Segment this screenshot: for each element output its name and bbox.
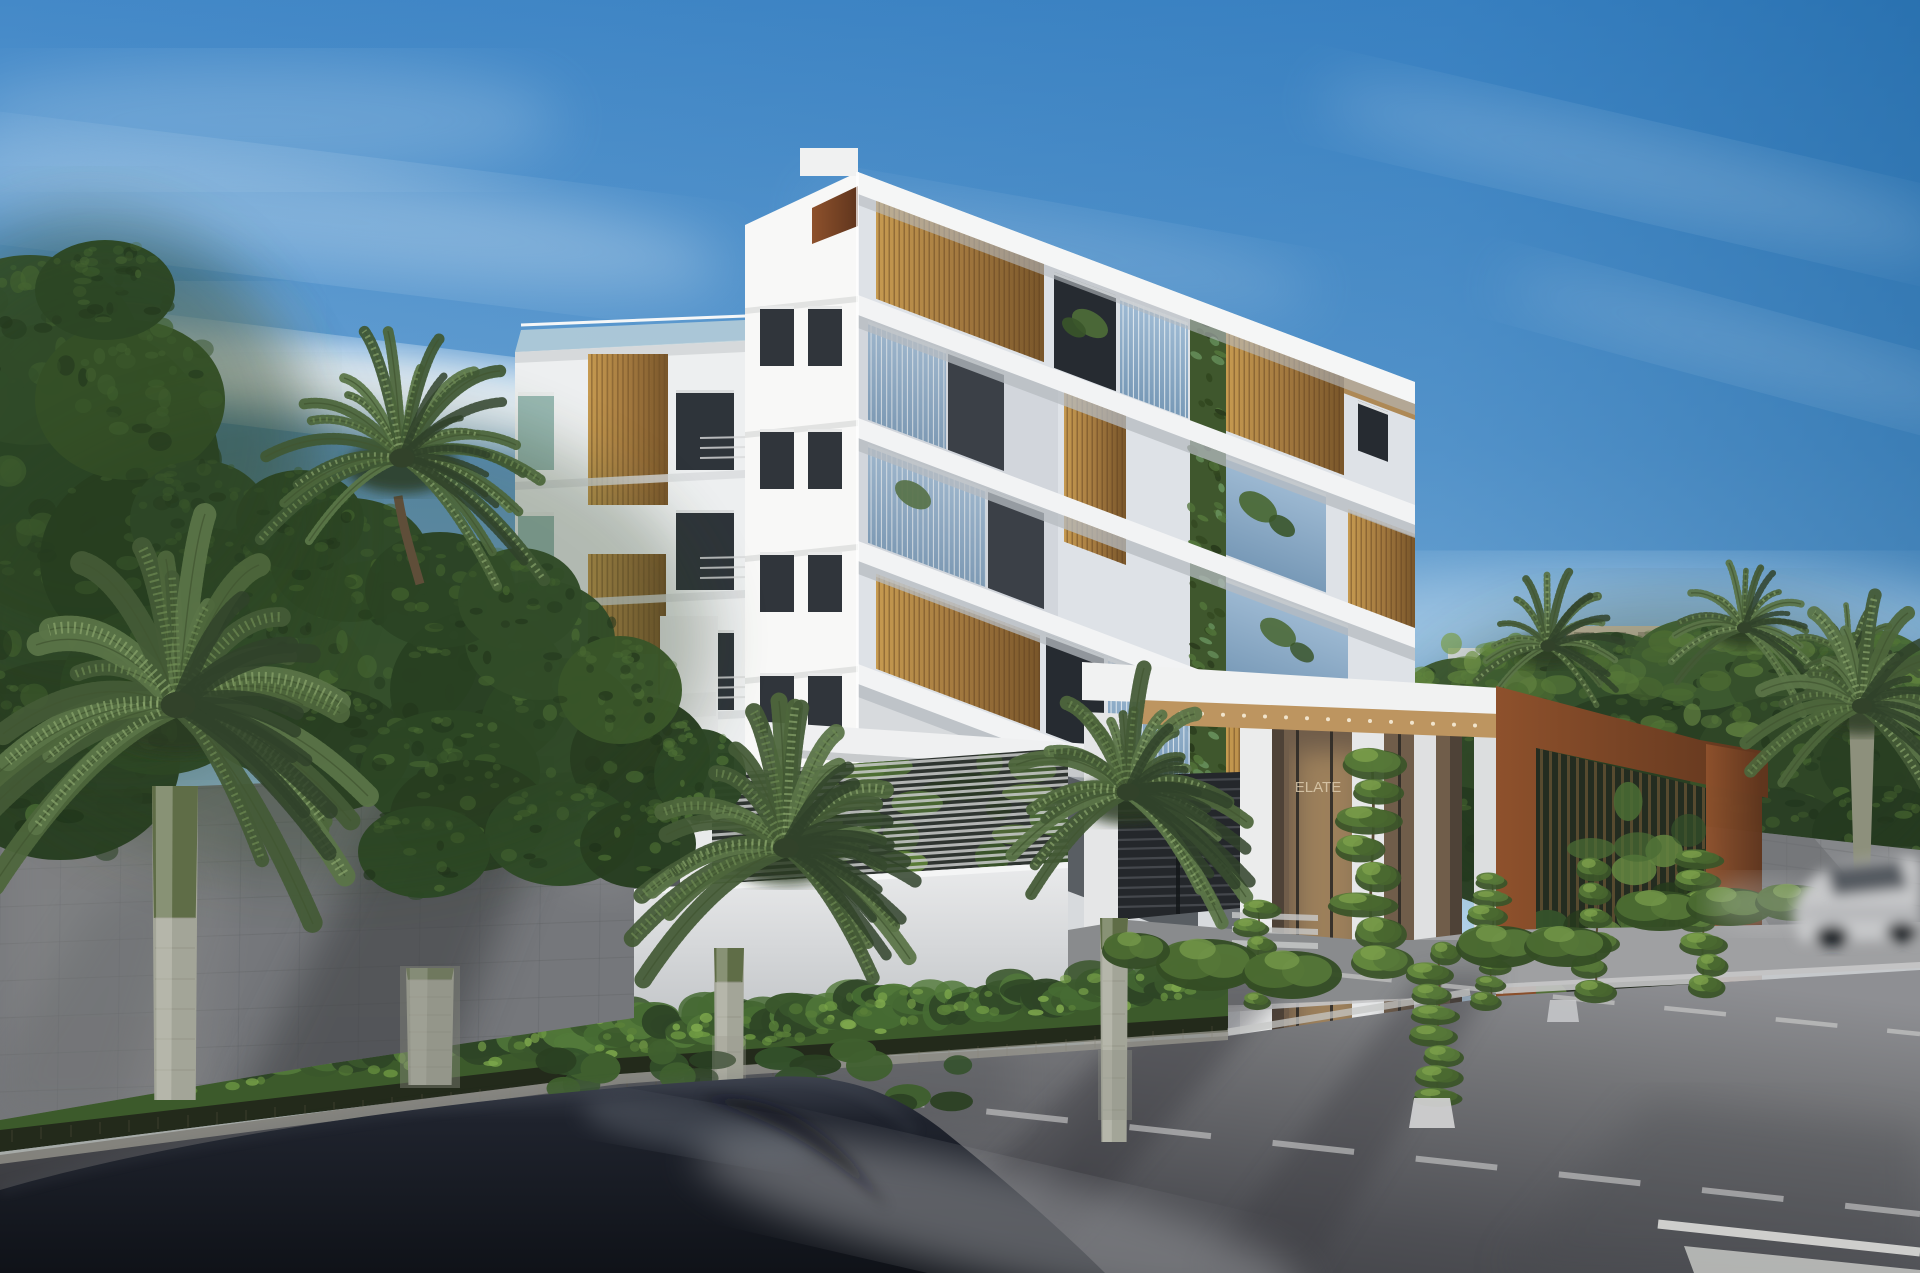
svg-text:ELATE: ELATE xyxy=(1295,779,1341,796)
